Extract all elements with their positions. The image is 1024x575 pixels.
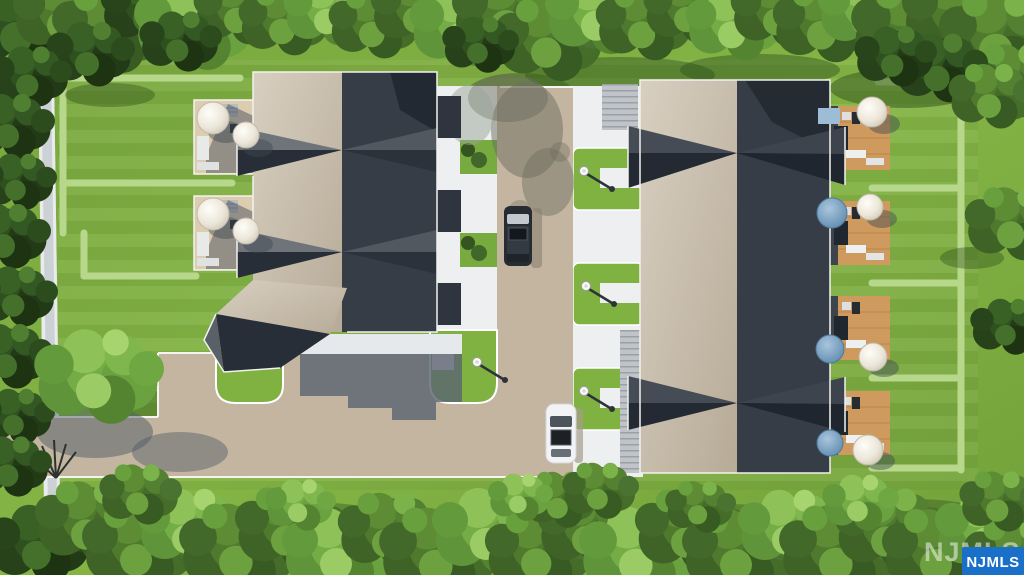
white-umbrella — [857, 97, 887, 127]
parked-van — [504, 206, 542, 268]
van-rear-glass — [507, 254, 529, 262]
bush-4 — [471, 245, 487, 261]
blue-umbrella — [817, 430, 843, 456]
garage-pad-top — [602, 84, 638, 130]
njmls-logo-text: NJMLS — [966, 554, 1019, 571]
car-rear-glass — [551, 449, 571, 457]
white-umbrella — [857, 194, 883, 220]
east-porch-2 — [437, 190, 461, 232]
east-porch-1 — [437, 96, 461, 138]
blue-umbrella — [816, 335, 844, 363]
walkway-island-2 — [573, 263, 643, 325]
right-building — [628, 80, 845, 473]
van-windshield — [507, 214, 529, 224]
white-umbrella — [859, 343, 887, 371]
white-umbrella — [853, 435, 883, 465]
parked-car — [546, 404, 583, 463]
rendering-canvas: NJMLS NJMLS — [0, 0, 1024, 575]
tree-canopy-bottom — [0, 463, 1024, 575]
white-umbrella — [233, 218, 259, 244]
east-porch-3 — [437, 283, 461, 325]
car-windshield — [550, 416, 572, 427]
white-umbrella — [197, 102, 229, 134]
car-sunroof — [551, 430, 571, 445]
van-shadow — [531, 208, 542, 268]
van-sunroof — [509, 228, 527, 240]
bush-2 — [471, 152, 487, 168]
blue-umbrella — [817, 198, 847, 228]
white-umbrella — [197, 198, 229, 230]
aerial-site-plan-rendering: NJMLS NJMLS — [0, 0, 1024, 575]
glass-table — [818, 108, 840, 124]
white-umbrella — [233, 122, 259, 148]
